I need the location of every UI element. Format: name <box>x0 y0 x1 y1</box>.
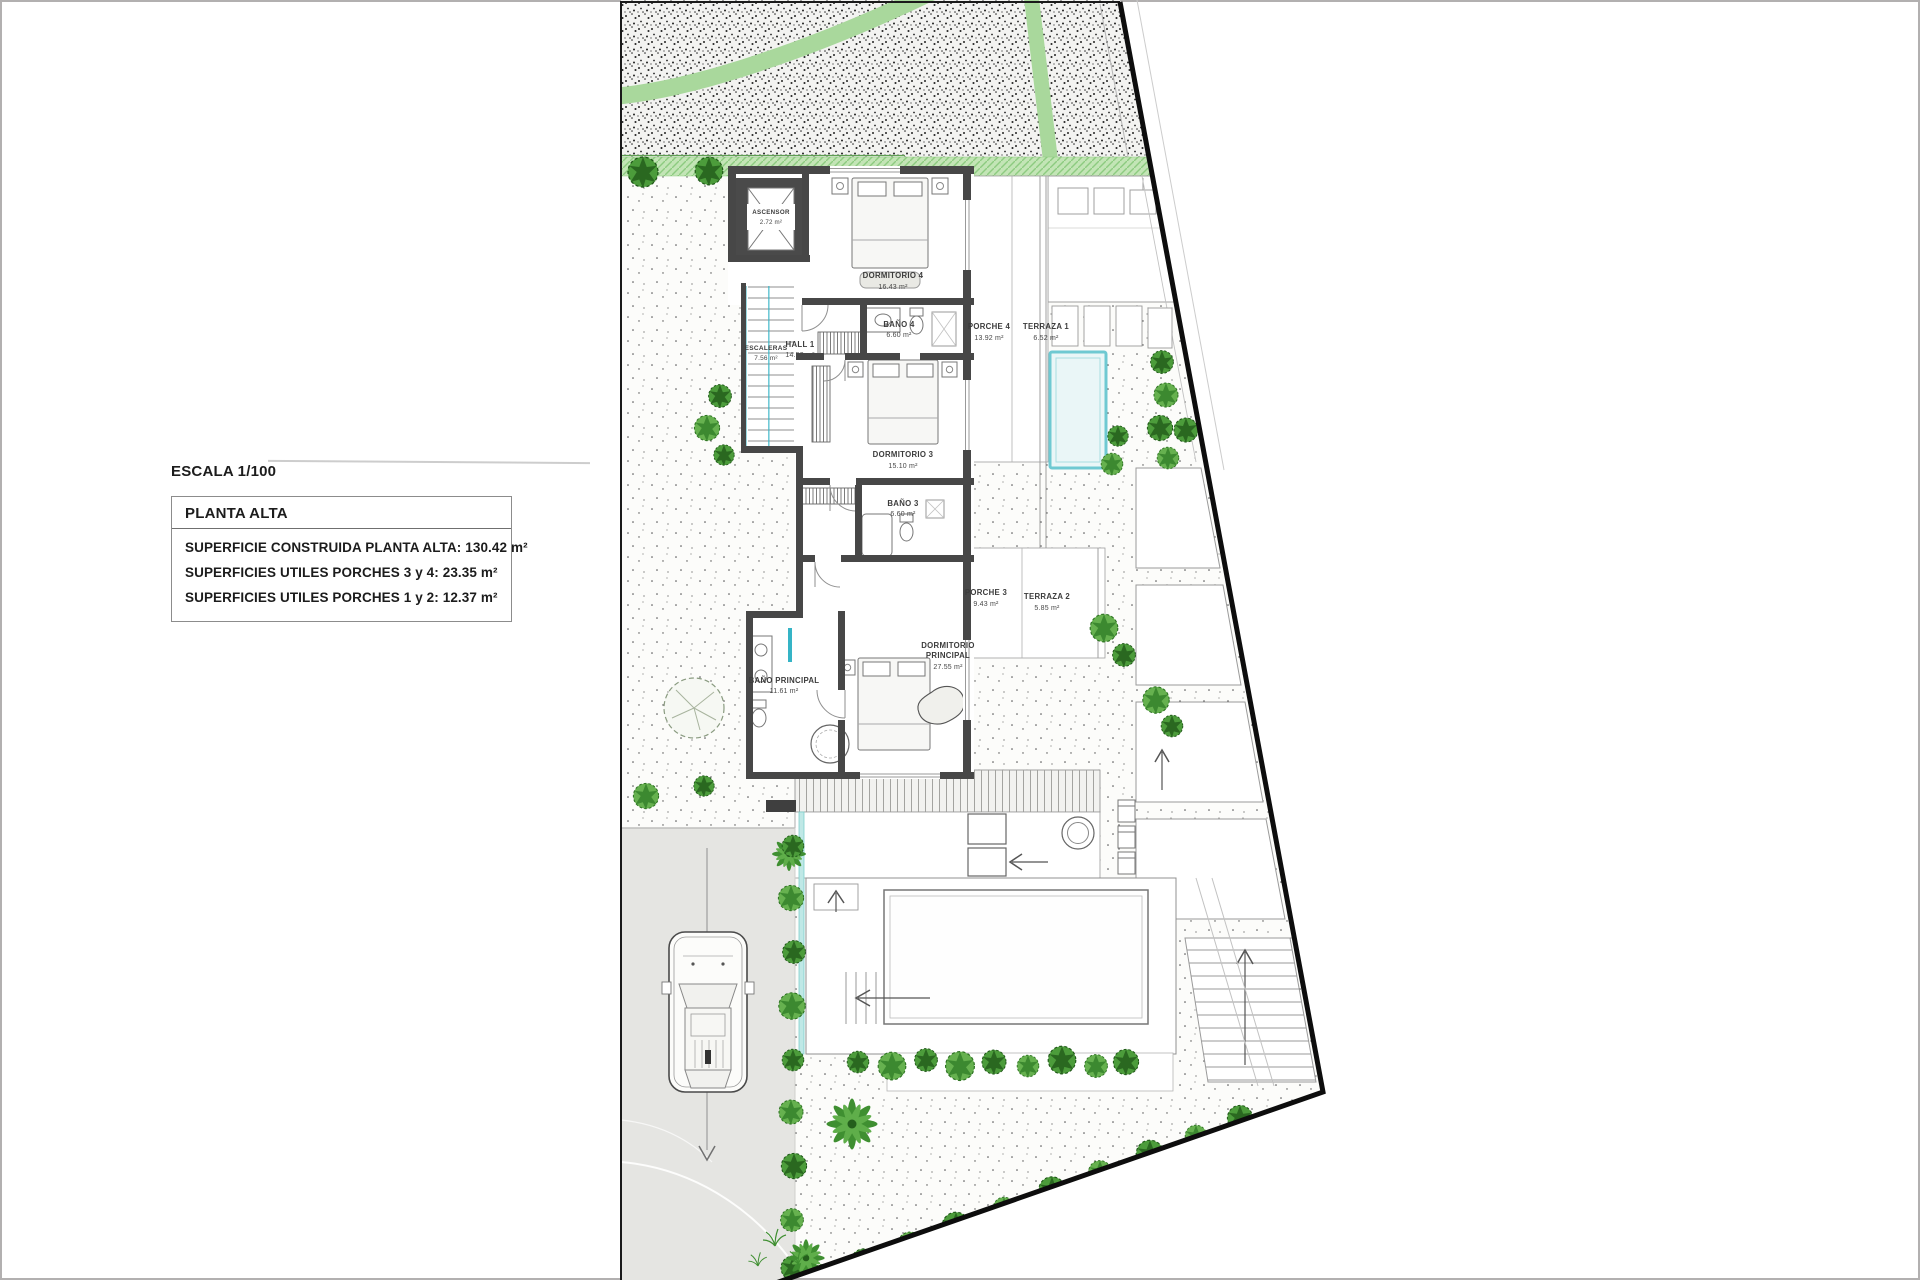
porches-1-2-line: SUPERFICIES UTILES PORCHES 1 y 2: 12.37 … <box>185 585 498 610</box>
porches-3-4-line: SUPERFICIES UTILES PORCHES 3 y 4: 23.35 … <box>185 560 498 585</box>
driveway <box>621 812 804 1280</box>
planter <box>1058 188 1088 214</box>
floorplan-page: ASCENSOR 2.72 m² DORMITORIO 4 16.43 m² B… <box>0 0 1920 1280</box>
room-label-porche-3: PORCHE 3 <box>965 588 1008 597</box>
room-label-hall-1: HALL 1 <box>786 340 815 349</box>
room-label-bano-principal: BAÑO PRINCIPAL <box>749 676 820 685</box>
room-label-dormitorio-principal: DORMITORIO <box>921 641 975 650</box>
room-area-bano-4: 6.60 m² <box>886 332 912 339</box>
lower-terrace <box>795 812 1100 878</box>
sketch-tree <box>664 678 724 738</box>
car-top-view <box>662 932 754 1092</box>
site-plan-svg: ASCENSOR 2.72 m² DORMITORIO 4 16.43 m² B… <box>0 0 1920 1280</box>
room-area-dormitorio-principal: 27.55 m² <box>933 664 963 671</box>
room-area-bano-3: 6.60 m² <box>890 511 916 518</box>
plan-info-box: PLANTA ALTA SUPERFICIE CONSTRUIDA PLANTA… <box>171 496 512 622</box>
room-label-dormitorio-principal-2: PRINCIPAL <box>926 651 970 660</box>
room-area-dormitorio-4: 16.43 m² <box>878 284 908 291</box>
room-area-hall-1: 14.52 m² <box>785 352 815 359</box>
room-area-escaleras: 7.56 m² <box>754 355 778 362</box>
room-area-ascensor: 2.72 m² <box>760 219 782 226</box>
closet <box>818 332 862 354</box>
room-area-terraza-2: 5.85 m² <box>1034 605 1060 612</box>
scale-label: ESCALA 1/100 <box>171 463 276 480</box>
equipment-box <box>968 814 1006 844</box>
room-label-escaleras: ESCALERAS <box>745 345 788 352</box>
built-area-line: SUPERFICIE CONSTRUIDA PLANTA ALTA: 130.4… <box>185 535 498 560</box>
room-label-ascensor: ASCENSOR <box>752 209 790 216</box>
room-label-terraza-1: TERRAZA 1 <box>1023 322 1070 331</box>
equipment-box <box>968 848 1006 876</box>
sun-loungers <box>1118 800 1135 874</box>
room-area-porche-3: 9.43 m² <box>973 601 999 608</box>
stairs <box>744 286 794 448</box>
room-area-terraza-1: 6.52 m² <box>1033 335 1059 342</box>
upper-terrain-band <box>618 0 1150 168</box>
plan-title: PLANTA ALTA <box>185 505 498 528</box>
planter <box>1094 188 1124 214</box>
lap-pool <box>1050 352 1106 468</box>
spa-circle <box>1062 817 1094 849</box>
room-label-terraza-2: TERRAZA 2 <box>1024 592 1071 601</box>
closet <box>798 488 856 504</box>
room-label-bano-4: BAÑO 4 <box>883 320 915 329</box>
info-box-rule <box>172 528 511 529</box>
planter <box>1130 190 1156 214</box>
swimming-pool <box>884 890 1148 1024</box>
room-label-bano-3: BAÑO 3 <box>887 499 919 508</box>
room-area-dormitorio-3: 15.10 m² <box>888 463 918 470</box>
closet <box>812 366 830 442</box>
room-label-dormitorio-3: DORMITORIO 3 <box>873 450 934 459</box>
room-area-porche-4: 13.92 m² <box>974 335 1004 342</box>
room-area-bano-principal: 11.61 m² <box>770 688 799 695</box>
room-label-porche-4: PORCHE 4 <box>968 322 1011 331</box>
room-label-dormitorio-4: DORMITORIO 4 <box>863 271 924 280</box>
